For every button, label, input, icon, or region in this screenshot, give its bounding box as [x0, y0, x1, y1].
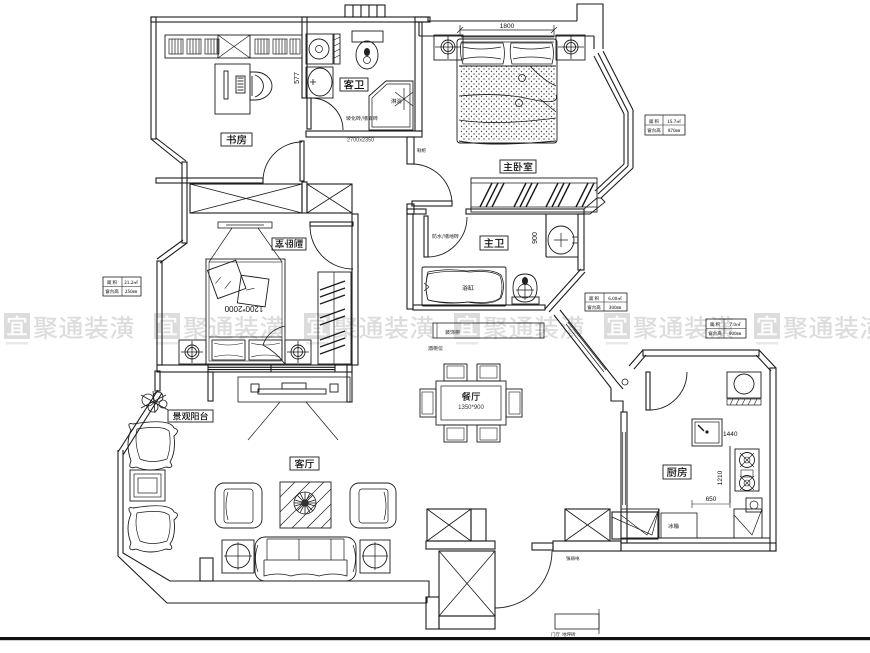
svg-text:577: 577	[294, 72, 301, 84]
svg-text:1350*900: 1350*900	[458, 405, 484, 411]
svg-text:1200*2000: 1200*2000	[224, 304, 263, 313]
svg-text:1440: 1440	[723, 431, 738, 438]
svg-text:650: 650	[706, 496, 717, 503]
svg-text:1210: 1210	[717, 470, 724, 485]
svg-text:2700x2350: 2700x2350	[347, 138, 374, 144]
svg-text:1800: 1800	[500, 23, 515, 30]
svg-text:900: 900	[532, 232, 539, 244]
